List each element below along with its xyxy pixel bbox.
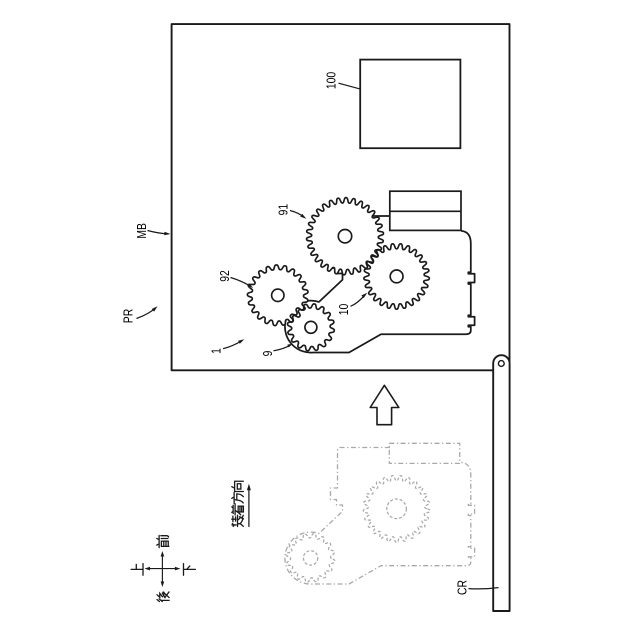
svg-text:MB: MB bbox=[135, 223, 149, 239]
svg-text:PR: PR bbox=[121, 309, 135, 323]
svg-text:9: 9 bbox=[261, 351, 275, 357]
svg-text:CR: CR bbox=[455, 580, 469, 595]
svg-text:92: 92 bbox=[218, 270, 232, 282]
svg-text:100: 100 bbox=[324, 71, 338, 89]
svg-text:10: 10 bbox=[337, 303, 351, 315]
svg-text:91: 91 bbox=[276, 204, 290, 216]
svg-text:1: 1 bbox=[209, 348, 223, 354]
